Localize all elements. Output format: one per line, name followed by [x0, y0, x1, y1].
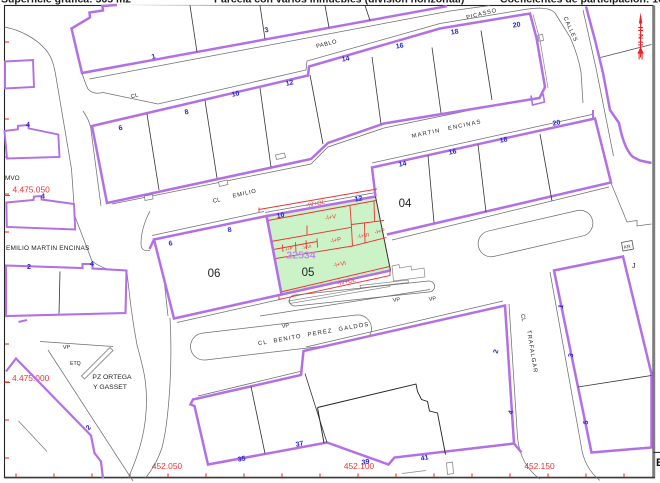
svg-text:12: 12: [354, 195, 363, 203]
svg-text:Y GASSET: Y GASSET: [93, 384, 127, 391]
svg-text:39: 39: [361, 458, 370, 466]
svg-text:VP: VP: [281, 323, 289, 330]
svg-text:MVO: MVO: [5, 175, 20, 182]
svg-text:06: 06: [208, 268, 221, 280]
svg-text:VP: VP: [428, 296, 436, 303]
svg-text:PZ ORTEGA: PZ ORTEGA: [92, 374, 132, 381]
svg-text:16: 16: [395, 42, 404, 50]
svg-text:35: 35: [237, 455, 246, 463]
svg-text:452.150: 452.150: [524, 461, 555, 471]
svg-text:18: 18: [450, 28, 459, 36]
svg-text:4: 4: [26, 122, 30, 129]
svg-text:Parcela con varios inmuebles (: Parcela con varios inmuebles (división h…: [214, 0, 464, 5]
svg-text:N: N: [638, 34, 645, 39]
svg-text:10: 10: [276, 212, 285, 220]
svg-text:ETQ: ETQ: [70, 361, 81, 367]
svg-text:05: 05: [302, 267, 315, 279]
svg-text:14: 14: [341, 55, 350, 63]
svg-text:452.100: 452.100: [344, 461, 375, 471]
svg-text:452.050: 452.050: [152, 461, 183, 471]
svg-text:J: J: [632, 263, 636, 270]
svg-text:VP: VP: [392, 297, 400, 304]
svg-text:4: 4: [41, 194, 45, 201]
svg-text:Coeficientes de participación:: Coeficientes de participación: 100,00000…: [500, 0, 660, 5]
svg-text:37: 37: [295, 440, 304, 448]
svg-text:4: 4: [90, 261, 94, 268]
svg-text:22534: 22534: [286, 250, 315, 262]
svg-text:E: E: [656, 457, 660, 469]
svg-text:2: 2: [27, 264, 31, 271]
svg-text:41: 41: [420, 454, 429, 462]
svg-text:VP: VP: [63, 344, 71, 351]
svg-text:20: 20: [512, 21, 521, 29]
svg-text:EMILIO MARTIN ENCINAS: EMILIO MARTIN ENCINAS: [6, 245, 90, 252]
svg-text:04: 04: [399, 198, 412, 210]
